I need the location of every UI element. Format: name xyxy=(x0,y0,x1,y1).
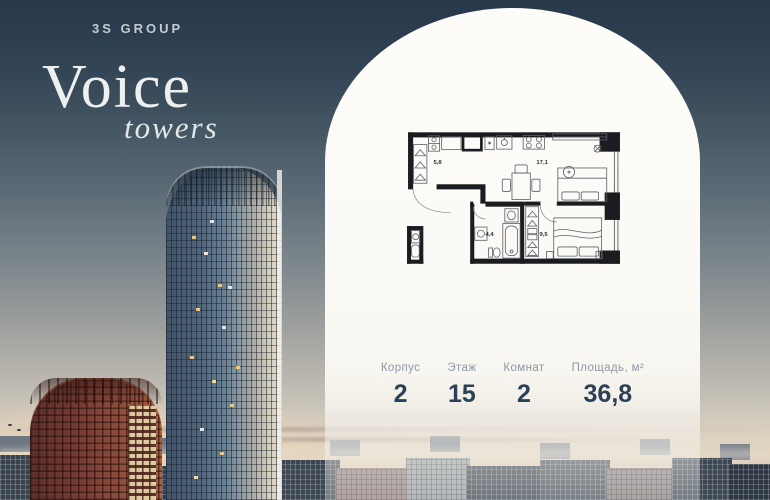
pilaster-top-right xyxy=(600,132,620,151)
project-title: Voice xyxy=(42,56,192,118)
bathtub-icon xyxy=(503,224,520,259)
stat-area: Площадь, м² 36,8 xyxy=(572,362,645,409)
washer-dryer-icon xyxy=(428,136,439,151)
red-tower-lit-windows xyxy=(128,406,156,500)
sofa-bed-icon xyxy=(558,168,607,202)
dishwasher-icon xyxy=(485,137,494,150)
stat-floor: Этаж 15 xyxy=(447,362,476,409)
toilet-icon xyxy=(489,248,501,257)
stat-label: Этаж xyxy=(447,362,476,374)
bathroom-door-arc xyxy=(473,207,485,219)
utility-niche-icons xyxy=(412,231,420,257)
bedroom-door-arc xyxy=(540,206,556,222)
red-tower-crown xyxy=(30,378,162,404)
stat-label: Корпус xyxy=(381,362,421,374)
kitchen-sink-icon xyxy=(497,136,512,149)
building-render-red-tower xyxy=(30,378,162,500)
stat-value: 36,8 xyxy=(572,380,645,409)
dining-table-icon xyxy=(502,165,540,200)
bird xyxy=(8,424,12,426)
bed-icon xyxy=(554,218,602,259)
apartment-stats: Корпус 2 Этаж 15 Комнат 2 Площадь, м² 36… xyxy=(325,362,700,409)
building-render-blue-tower xyxy=(166,166,282,500)
stove-icon xyxy=(523,135,544,149)
bathroom-sink-icon xyxy=(505,209,518,222)
room-area-bathroom: 4,4 xyxy=(485,232,494,238)
blue-tower-crown xyxy=(166,166,282,206)
stat-value: 15 xyxy=(447,380,476,409)
pilaster-bottom-right xyxy=(600,251,620,264)
kitchen-counter-icon xyxy=(442,137,461,150)
stat-value: 2 xyxy=(503,380,544,409)
stat-value: 2 xyxy=(381,380,421,409)
hallway-wardrobe-icon xyxy=(414,145,427,184)
listing-hero-image: 5,8 17,1 4,4 9,5 Корпус 2 Этаж 15 Комнат… xyxy=(0,0,770,500)
blue-tower-lit-windows xyxy=(166,166,170,169)
room-area-hallway: 5,8 xyxy=(434,160,443,166)
stat-building: Корпус 2 xyxy=(381,362,421,409)
floor-plan-walls xyxy=(407,132,620,263)
ventilation-shaft xyxy=(463,136,481,150)
room-area-living: 17,1 xyxy=(536,160,548,166)
bedroom-wardrobe-icon xyxy=(526,207,539,257)
bird xyxy=(17,429,21,431)
developer-logo: 3S GROUP xyxy=(92,21,183,36)
stat-label: Комнат xyxy=(503,362,544,374)
stat-label: Площадь, м² xyxy=(572,362,645,374)
city-building xyxy=(728,464,770,500)
nightstand-icon xyxy=(547,252,554,259)
entry-door-arc xyxy=(413,189,451,212)
stat-rooms: Комнат 2 xyxy=(503,362,544,409)
blue-tower-sunlit-edge xyxy=(277,170,282,500)
floor-plan: 5,8 17,1 4,4 9,5 xyxy=(406,128,622,265)
project-subtitle: towers xyxy=(124,110,219,146)
room-area-bedroom: 9,5 xyxy=(539,232,548,238)
